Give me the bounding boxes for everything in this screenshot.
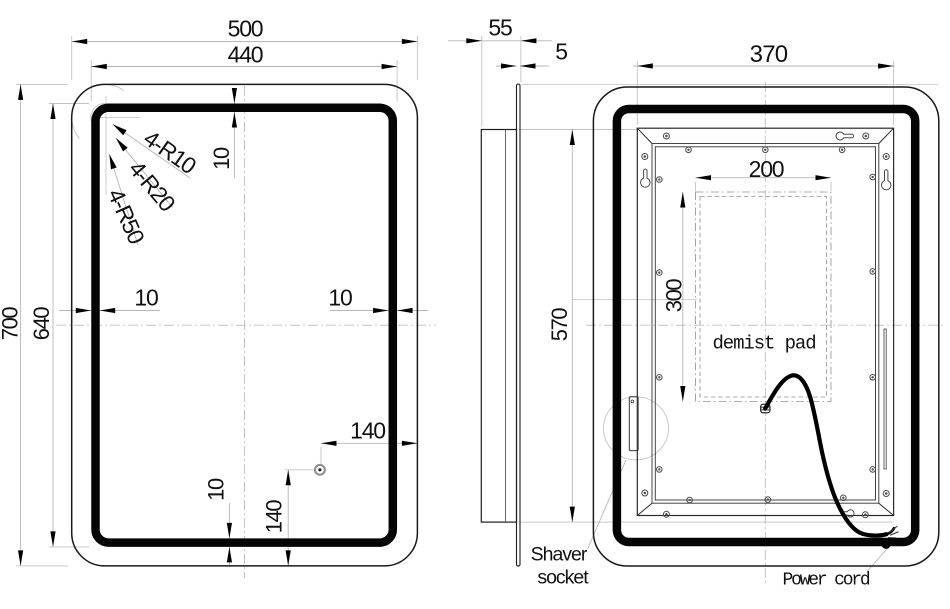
svg-text:700: 700 — [0, 307, 23, 341]
svg-text:demist pad: demist pad — [712, 333, 815, 355]
svg-text:300: 300 — [662, 279, 687, 313]
svg-text:370: 370 — [750, 41, 788, 68]
svg-text:140: 140 — [262, 500, 287, 534]
svg-text:10: 10 — [204, 478, 229, 501]
svg-text:10: 10 — [209, 147, 234, 170]
svg-text:10: 10 — [134, 285, 158, 311]
svg-text:570: 570 — [547, 308, 572, 342]
svg-text:440: 440 — [228, 42, 263, 68]
svg-text:140: 140 — [350, 418, 385, 444]
svg-text:Power cord: Power cord — [782, 571, 869, 591]
svg-text:640: 640 — [29, 307, 54, 341]
svg-text:200: 200 — [749, 156, 784, 182]
svg-text:500: 500 — [228, 16, 263, 42]
svg-text:55: 55 — [488, 15, 512, 41]
svg-text:Shaver: Shaver — [531, 544, 588, 566]
svg-text:socket: socket — [537, 567, 589, 589]
svg-text:10: 10 — [328, 285, 352, 311]
svg-text:5: 5 — [555, 39, 567, 65]
